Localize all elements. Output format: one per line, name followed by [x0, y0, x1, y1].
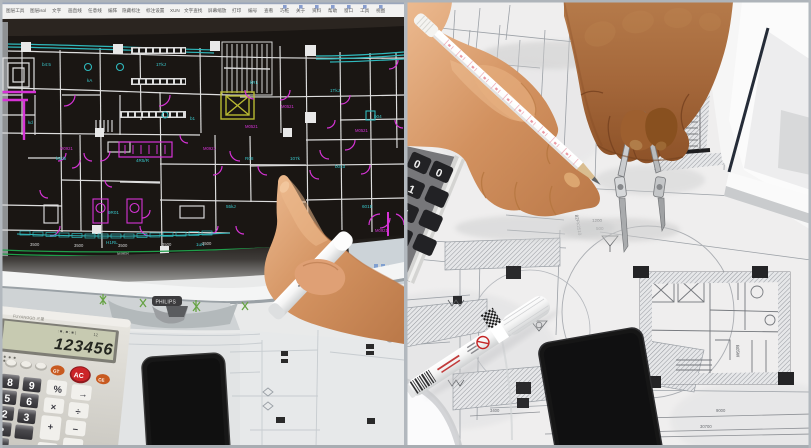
svg-text:1TkJ: 1TkJ [156, 62, 166, 67]
svg-text:R08: R08 [245, 156, 254, 161]
svg-text:55kJ: 55kJ [226, 204, 236, 209]
svg-text:b01d: b01d [335, 164, 346, 169]
svg-text:30700: 30700 [700, 424, 712, 429]
svg-text:b4:5: b4:5 [42, 62, 51, 67]
svg-text:标注设置: 标注设置 [146, 7, 165, 14]
svg-text:打印: 打印 [232, 7, 242, 14]
svg-text:屏幕缩放: 屏幕缩放 [208, 7, 227, 14]
svg-text:M0921: M0921 [203, 146, 216, 151]
svg-text:b1: b1 [190, 116, 196, 121]
svg-text:M0921: M0921 [60, 146, 73, 151]
svg-text:3500: 3500 [30, 242, 40, 247]
svg-text:任意线: 任意线 [88, 7, 102, 14]
svg-text:文字查找: 文字查找 [184, 7, 203, 14]
svg-text:M0521: M0521 [281, 104, 294, 109]
svg-text:M0921: M0921 [375, 228, 388, 233]
svg-text:M0521: M0521 [355, 128, 368, 133]
svg-text:9000: 9000 [716, 408, 726, 413]
svg-text:%: % [53, 384, 63, 396]
svg-text:3400: 3400 [490, 408, 500, 413]
svg-text:9R01: 9R01 [108, 210, 119, 215]
svg-text:B05W: B05W [735, 345, 740, 358]
svg-text:kRL: kRL [250, 80, 259, 85]
svg-text:b5d5: b5d5 [56, 156, 67, 161]
svg-text:XUN: XUN [170, 8, 180, 13]
svg-text:H1RL: H1RL [106, 240, 118, 245]
svg-text:编阵: 编阵 [108, 7, 118, 14]
svg-text:3500: 3500 [74, 243, 84, 248]
svg-text:3500: 3500 [202, 241, 212, 246]
svg-text:1TkJ: 1TkJ [330, 88, 340, 93]
svg-text:隐藏标注: 隐藏标注 [122, 7, 141, 14]
svg-text:CE: CE [98, 377, 105, 383]
svg-text:107k: 107k [290, 156, 301, 161]
svg-text:GT: GT [53, 368, 60, 374]
svg-text:PHILIPS: PHILIPS [156, 300, 177, 306]
svg-text:画直线: 画直线 [68, 7, 82, 14]
svg-text:kA: kA [87, 78, 93, 83]
svg-text:文字: 文字 [52, 7, 62, 14]
svg-text:b04: b04 [374, 114, 382, 119]
svg-text:3500: 3500 [118, 243, 128, 248]
svg-text:601E: 601E [362, 204, 373, 209]
svg-text:AC: AC [73, 372, 84, 380]
svg-text:编号: 编号 [248, 7, 258, 14]
svg-text:kd: kd [28, 120, 33, 125]
svg-text:4R5/R: 4R5/R [136, 158, 150, 163]
svg-text:→: → [78, 389, 89, 401]
svg-text:3500: 3500 [162, 242, 172, 247]
svg-text:M0521: M0521 [245, 124, 258, 129]
svg-text:查看: 查看 [264, 7, 274, 14]
